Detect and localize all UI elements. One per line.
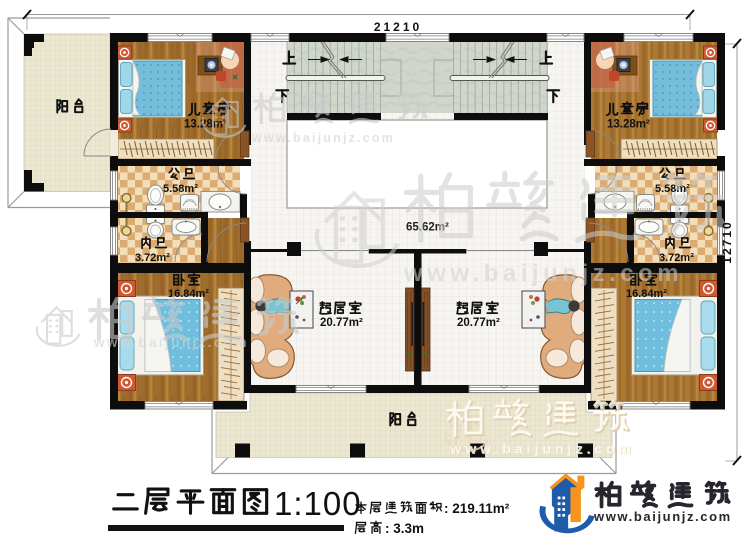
svg-text:1:100: 1:100 [274,485,362,522]
svg-text:21210: 21210 [374,20,422,34]
svg-text:: 219.11m²: : 219.11m² [444,501,510,516]
svg-text:13.28m²: 13.28m² [607,119,650,131]
svg-text:5.58m²: 5.58m² [163,183,198,195]
svg-text:3.72m²: 3.72m² [135,252,170,264]
svg-text:20.77m²: 20.77m² [320,317,363,329]
svg-text:www.baijunjz.com: www.baijunjz.com [593,509,732,524]
svg-text:: 3.3m: : 3.3m [385,521,424,536]
svg-text:www.baijunjz.com: www.baijunjz.com [449,440,635,456]
svg-text:www.baijunjz.com: www.baijunjz.com [251,131,395,145]
svg-text:20.77m²: 20.77m² [457,317,500,329]
svg-text:12710: 12710 [720,220,734,263]
svg-text:16.84m²: 16.84m² [626,288,667,300]
svg-text:www.baijunjz.com: www.baijunjz.com [93,335,249,350]
svg-text:www.baijunjz.com: www.baijunjz.com [403,260,683,287]
svg-text:5.58m²: 5.58m² [655,183,690,195]
